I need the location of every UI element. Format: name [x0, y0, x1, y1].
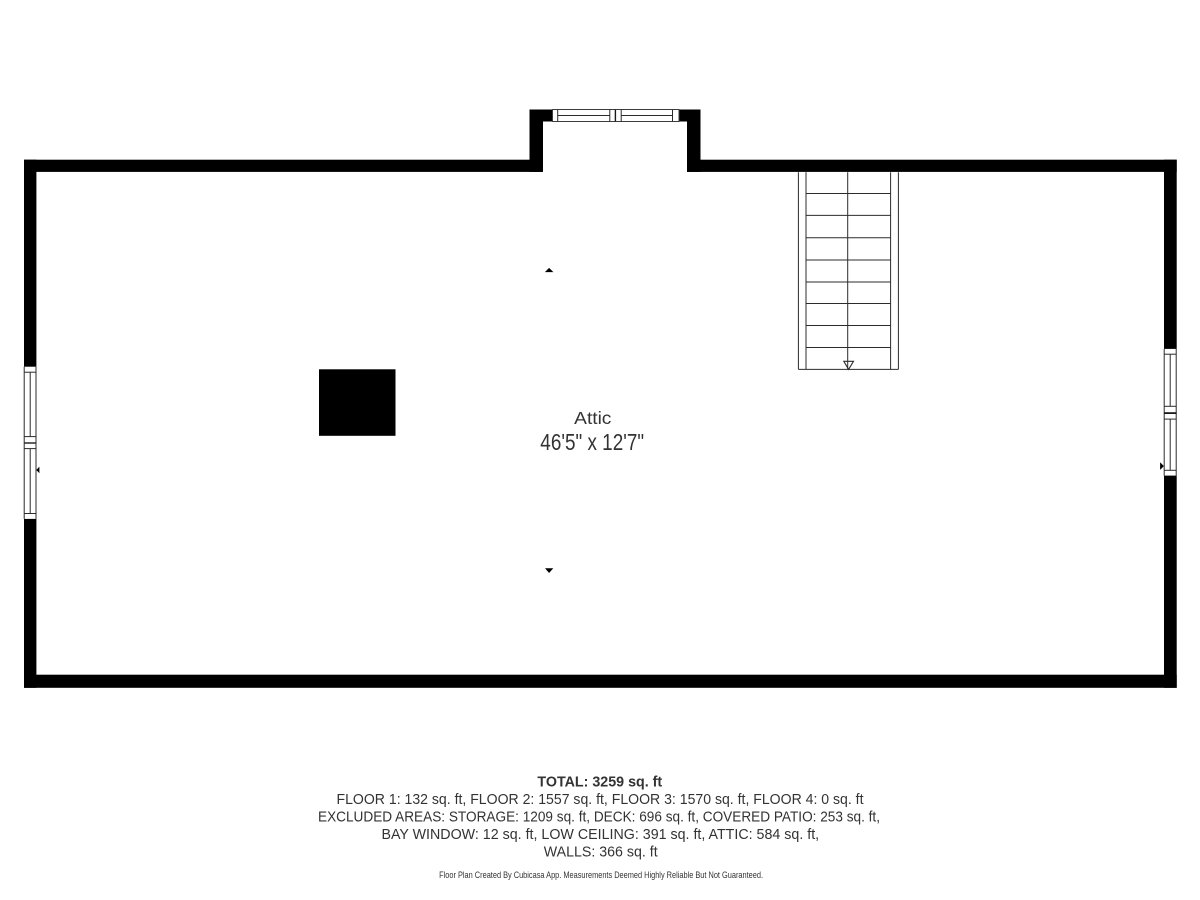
svg-text:WALLS: 366 sq. ft: WALLS: 366 sq. ft	[544, 844, 658, 860]
svg-text:BAY WINDOW: 12 sq. ft, LOW CEI: BAY WINDOW: 12 sq. ft, LOW CEILING: 391 …	[381, 827, 819, 843]
svg-text:Floor Plan Created By Cubicasa: Floor Plan Created By Cubicasa App. Meas…	[439, 870, 763, 880]
svg-text:FLOOR 1: 132 sq. ft, FLOOR 2:: FLOOR 1: 132 sq. ft, FLOOR 2: 1557 sq. f…	[337, 792, 864, 808]
svg-text:TOTAL: 3259 sq. ft: TOTAL: 3259 sq. ft	[537, 774, 662, 790]
svg-text:46'5" x 12'7": 46'5" x 12'7"	[540, 429, 644, 455]
svg-text:Attic: Attic	[574, 408, 611, 428]
svg-text:EXCLUDED AREAS: STORAGE: 1209: EXCLUDED AREAS: STORAGE: 1209 sq. ft, DE…	[318, 809, 880, 825]
